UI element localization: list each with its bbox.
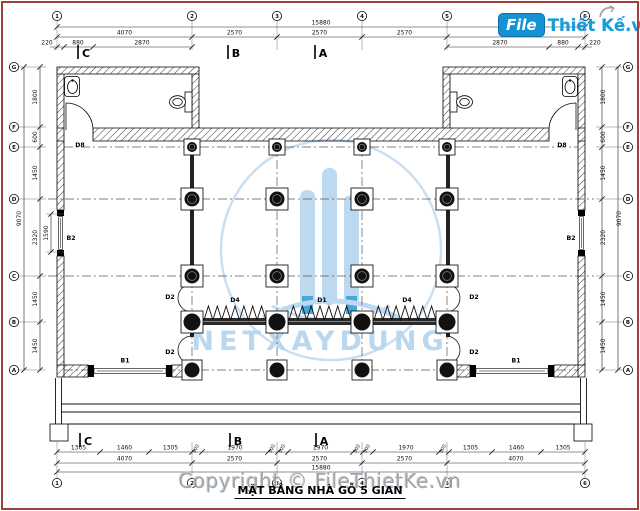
tag-b2: B2 xyxy=(66,235,75,242)
front-steps xyxy=(50,378,592,441)
dim-label: 2570 xyxy=(397,30,412,37)
columns xyxy=(181,139,458,380)
dim-label: 2320 xyxy=(600,230,607,245)
dim-label: 2870 xyxy=(134,40,149,47)
tag-d2: D2 xyxy=(165,349,174,356)
grid-bubble-label: B xyxy=(626,320,630,326)
tag-d2: D2 xyxy=(469,294,478,301)
dim-label: 1450 xyxy=(600,291,607,306)
dim-label: 1450 xyxy=(600,338,607,353)
dim-label: 220 xyxy=(41,40,53,47)
dim-label: 1450 xyxy=(32,165,39,180)
grid-bubble-label: 3 xyxy=(275,14,279,20)
right-dimensions: 9070 1800 600 1450 2320 1450 1450 xyxy=(600,89,623,353)
dim-label: 4070 xyxy=(508,456,523,463)
dim-label: 1970 xyxy=(398,445,413,452)
grid-bubbles: 1 2 3 4 5 6 1 2 3 4 5 6 G F E D C B xyxy=(9,11,632,487)
curved-arrow-icon xyxy=(598,3,620,19)
section-marker-label: C xyxy=(82,47,90,60)
grid-bubble-label: C xyxy=(12,274,16,280)
interior-walls xyxy=(190,147,450,337)
grid-bubble-label: 1 xyxy=(55,14,59,20)
dim-label: 1460 xyxy=(509,445,524,452)
dim-label: 300 xyxy=(267,444,277,455)
dim-label: 4070 xyxy=(117,456,132,463)
tag-d4: D4 xyxy=(230,297,240,304)
footing-right xyxy=(574,424,592,441)
dim-label: 2570 xyxy=(312,456,327,463)
left-dimensions: 9070 1800 600 1450 2320 1450 1450 1590 xyxy=(16,89,50,353)
grid-bubble-label: A xyxy=(12,368,17,374)
dim-label: 1305 xyxy=(163,445,178,452)
grid-bubble-label: 4 xyxy=(360,14,364,20)
door-d2-right-upper xyxy=(446,284,460,312)
dim-label: 1450 xyxy=(32,338,39,353)
door-d2-left-upper xyxy=(178,284,192,312)
grid-bubble-label: E xyxy=(626,145,630,151)
tag-d1: D1 xyxy=(317,297,326,304)
toilet-tank xyxy=(450,92,457,112)
dim-label: 1450 xyxy=(600,165,607,180)
dim-label: 2570 xyxy=(227,456,242,463)
dim-label: 2570 xyxy=(227,30,242,37)
folding-doors xyxy=(204,306,436,320)
grid-bubble-label: E xyxy=(12,145,16,151)
grid-bubble-label: 5 xyxy=(445,14,449,20)
grid-bubble-label: 2 xyxy=(190,14,194,20)
grid-bubble-label: D xyxy=(626,197,631,203)
logo-brand-text: Thiết Kế.vn xyxy=(548,16,640,35)
dim-label: 1305 xyxy=(463,445,478,452)
tag-d8: D8 xyxy=(557,142,566,149)
dim-label: 1800 xyxy=(600,89,607,104)
dim-label: 600 xyxy=(600,131,607,143)
dim-label: 15880 xyxy=(311,20,330,27)
dim-label: 300 xyxy=(277,444,287,455)
tag-d2: D2 xyxy=(165,294,174,301)
windows xyxy=(59,217,584,374)
logo-file-badge: File xyxy=(498,13,545,37)
dim-label: 1800 xyxy=(32,89,39,104)
dim-label: 300 xyxy=(352,444,362,455)
grid-bubble-label: D xyxy=(12,197,17,203)
dim-label: 220 xyxy=(589,40,601,47)
section-marker-label: A xyxy=(319,47,328,60)
dim-label: 300 xyxy=(438,444,448,455)
grid-bubble-label: B xyxy=(12,320,16,326)
floor-plan-screenshot: NETXAYDUNG xyxy=(0,0,640,511)
section-markers: C B A C B A xyxy=(78,45,329,448)
dim-label: 9070 xyxy=(16,211,23,226)
grid-bubble-label: 6 xyxy=(583,481,587,487)
dim-label: 2570 xyxy=(397,456,412,463)
dim-label: 1450 xyxy=(32,291,39,306)
grid-centerlines xyxy=(48,143,594,377)
section-marker-label: A xyxy=(320,435,329,448)
section-marker-label: C xyxy=(84,435,92,448)
dim-label: 300 xyxy=(362,444,372,455)
tag-d4: D4 xyxy=(402,297,412,304)
tag-d2: D2 xyxy=(469,349,478,356)
grid-bubbles-right: G F E D C B A xyxy=(623,62,632,374)
footing-left xyxy=(50,424,68,441)
dim-label: 1305 xyxy=(555,445,570,452)
drawing-title: MẶT BẰNG NHÀ GỖ 5 GIAN xyxy=(234,484,405,499)
dim-label: 4070 xyxy=(117,30,132,37)
grid-bubble-label: C xyxy=(626,274,630,280)
section-marker-label: B xyxy=(234,435,242,448)
tag-d8: D8 xyxy=(75,142,84,149)
dimension-lines xyxy=(19,19,623,478)
dim-label: 2870 xyxy=(492,40,507,47)
grid-bubble-label: G xyxy=(12,65,17,71)
grid-bubble-label: G xyxy=(626,65,631,71)
dim-label: 1590 xyxy=(43,225,50,240)
dim-label: 300 xyxy=(191,444,201,455)
dim-label: 600 xyxy=(32,131,39,143)
grid-bubble-label: F xyxy=(12,125,16,131)
dim-label: 2570 xyxy=(312,30,327,37)
toilet-tank xyxy=(185,92,192,112)
dim-label: 2320 xyxy=(32,230,39,245)
grid-bubble-label: 1 xyxy=(55,481,59,487)
door-d8-left xyxy=(66,103,93,130)
door-d8-right xyxy=(549,103,576,130)
plan-drawing: 15880 4070 2570 2570 2570 4070 220 880 2… xyxy=(0,0,640,511)
exterior-walls xyxy=(57,67,585,377)
grid-bubble-label: A xyxy=(626,368,631,374)
tag-b2: B2 xyxy=(566,235,575,242)
grid-bubble-label: F xyxy=(626,125,630,131)
left-toilet-room-fixtures xyxy=(65,77,193,113)
dim-label: 9070 xyxy=(616,211,623,226)
right-toilet-room-fixtures xyxy=(450,77,578,113)
dim-label: 1460 xyxy=(117,445,132,452)
section-marker-label: B xyxy=(232,47,240,60)
dim-label: 880 xyxy=(557,40,569,47)
tag-b1: B1 xyxy=(120,358,129,365)
tag-b1: B1 xyxy=(511,358,520,365)
component-tags: D8 D8 B2 B2 B1 B1 D2 D2 D2 D2 D4 D4 D1 xyxy=(66,142,575,365)
